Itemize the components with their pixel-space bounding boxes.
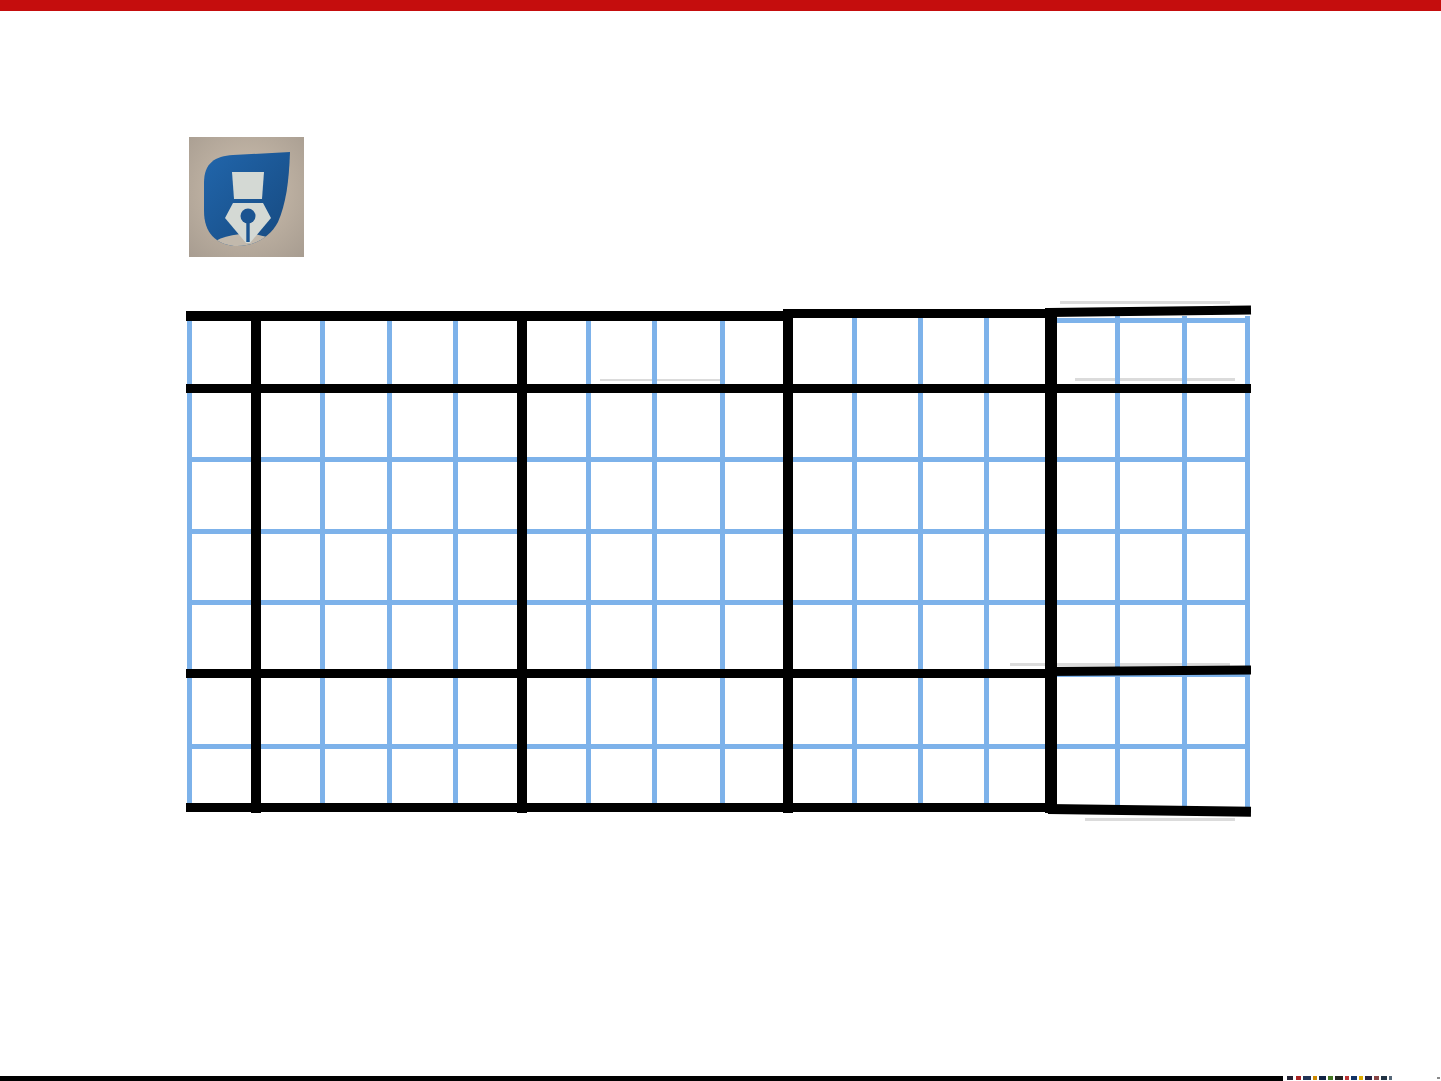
cutoff-text-dash <box>1374 1076 1379 1080</box>
grid-blue-hline <box>1052 318 1250 323</box>
cutoff-text-dash <box>1345 1076 1349 1080</box>
cutoff-text-dash <box>1381 1076 1387 1080</box>
grid-black-hline <box>186 384 1251 393</box>
cutoff-text-dash <box>1359 1076 1363 1080</box>
grid-blue-hline <box>187 744 1250 749</box>
grid-blue-hline <box>187 457 1250 462</box>
cutoff-text-dash <box>1313 1076 1317 1080</box>
grid-black-hline <box>1048 305 1251 316</box>
pen-body <box>232 172 264 199</box>
scan-smudge <box>600 379 720 381</box>
grid-black-hline <box>1046 665 1251 675</box>
cutoff-text-dash <box>1287 1076 1293 1080</box>
cutoff-text-dash <box>1296 1076 1301 1080</box>
cutoff-text-dash <box>1319 1076 1326 1080</box>
grid-blue-hline <box>187 529 1250 534</box>
scan-smudge <box>1060 301 1230 304</box>
cutoff-text-dash <box>1365 1076 1372 1080</box>
grid-black-hline <box>783 309 1055 318</box>
top-red-bar <box>0 0 1441 11</box>
grid-black-hline <box>186 311 789 321</box>
grid-blue-hline <box>187 600 1250 605</box>
grid-black-hline <box>1048 804 1251 817</box>
cutoff-text-dash <box>1335 1076 1343 1080</box>
grid-black-hline <box>186 669 1050 678</box>
pen-nib-logo-icon <box>189 137 304 257</box>
scan-smudge <box>1075 378 1235 381</box>
grid-black-hline <box>186 803 1056 812</box>
stray-dot <box>1437 1077 1440 1079</box>
cutoff-text-dash <box>1303 1076 1311 1080</box>
cutoff-text-dash <box>1328 1076 1333 1080</box>
cutoff-text-dash <box>1351 1076 1357 1080</box>
bottom-black-bar <box>0 1076 1283 1081</box>
cutoff-text-dash <box>1389 1076 1392 1080</box>
scan-smudge <box>1085 818 1235 821</box>
nib-slit <box>246 216 249 242</box>
page <box>0 0 1441 1081</box>
